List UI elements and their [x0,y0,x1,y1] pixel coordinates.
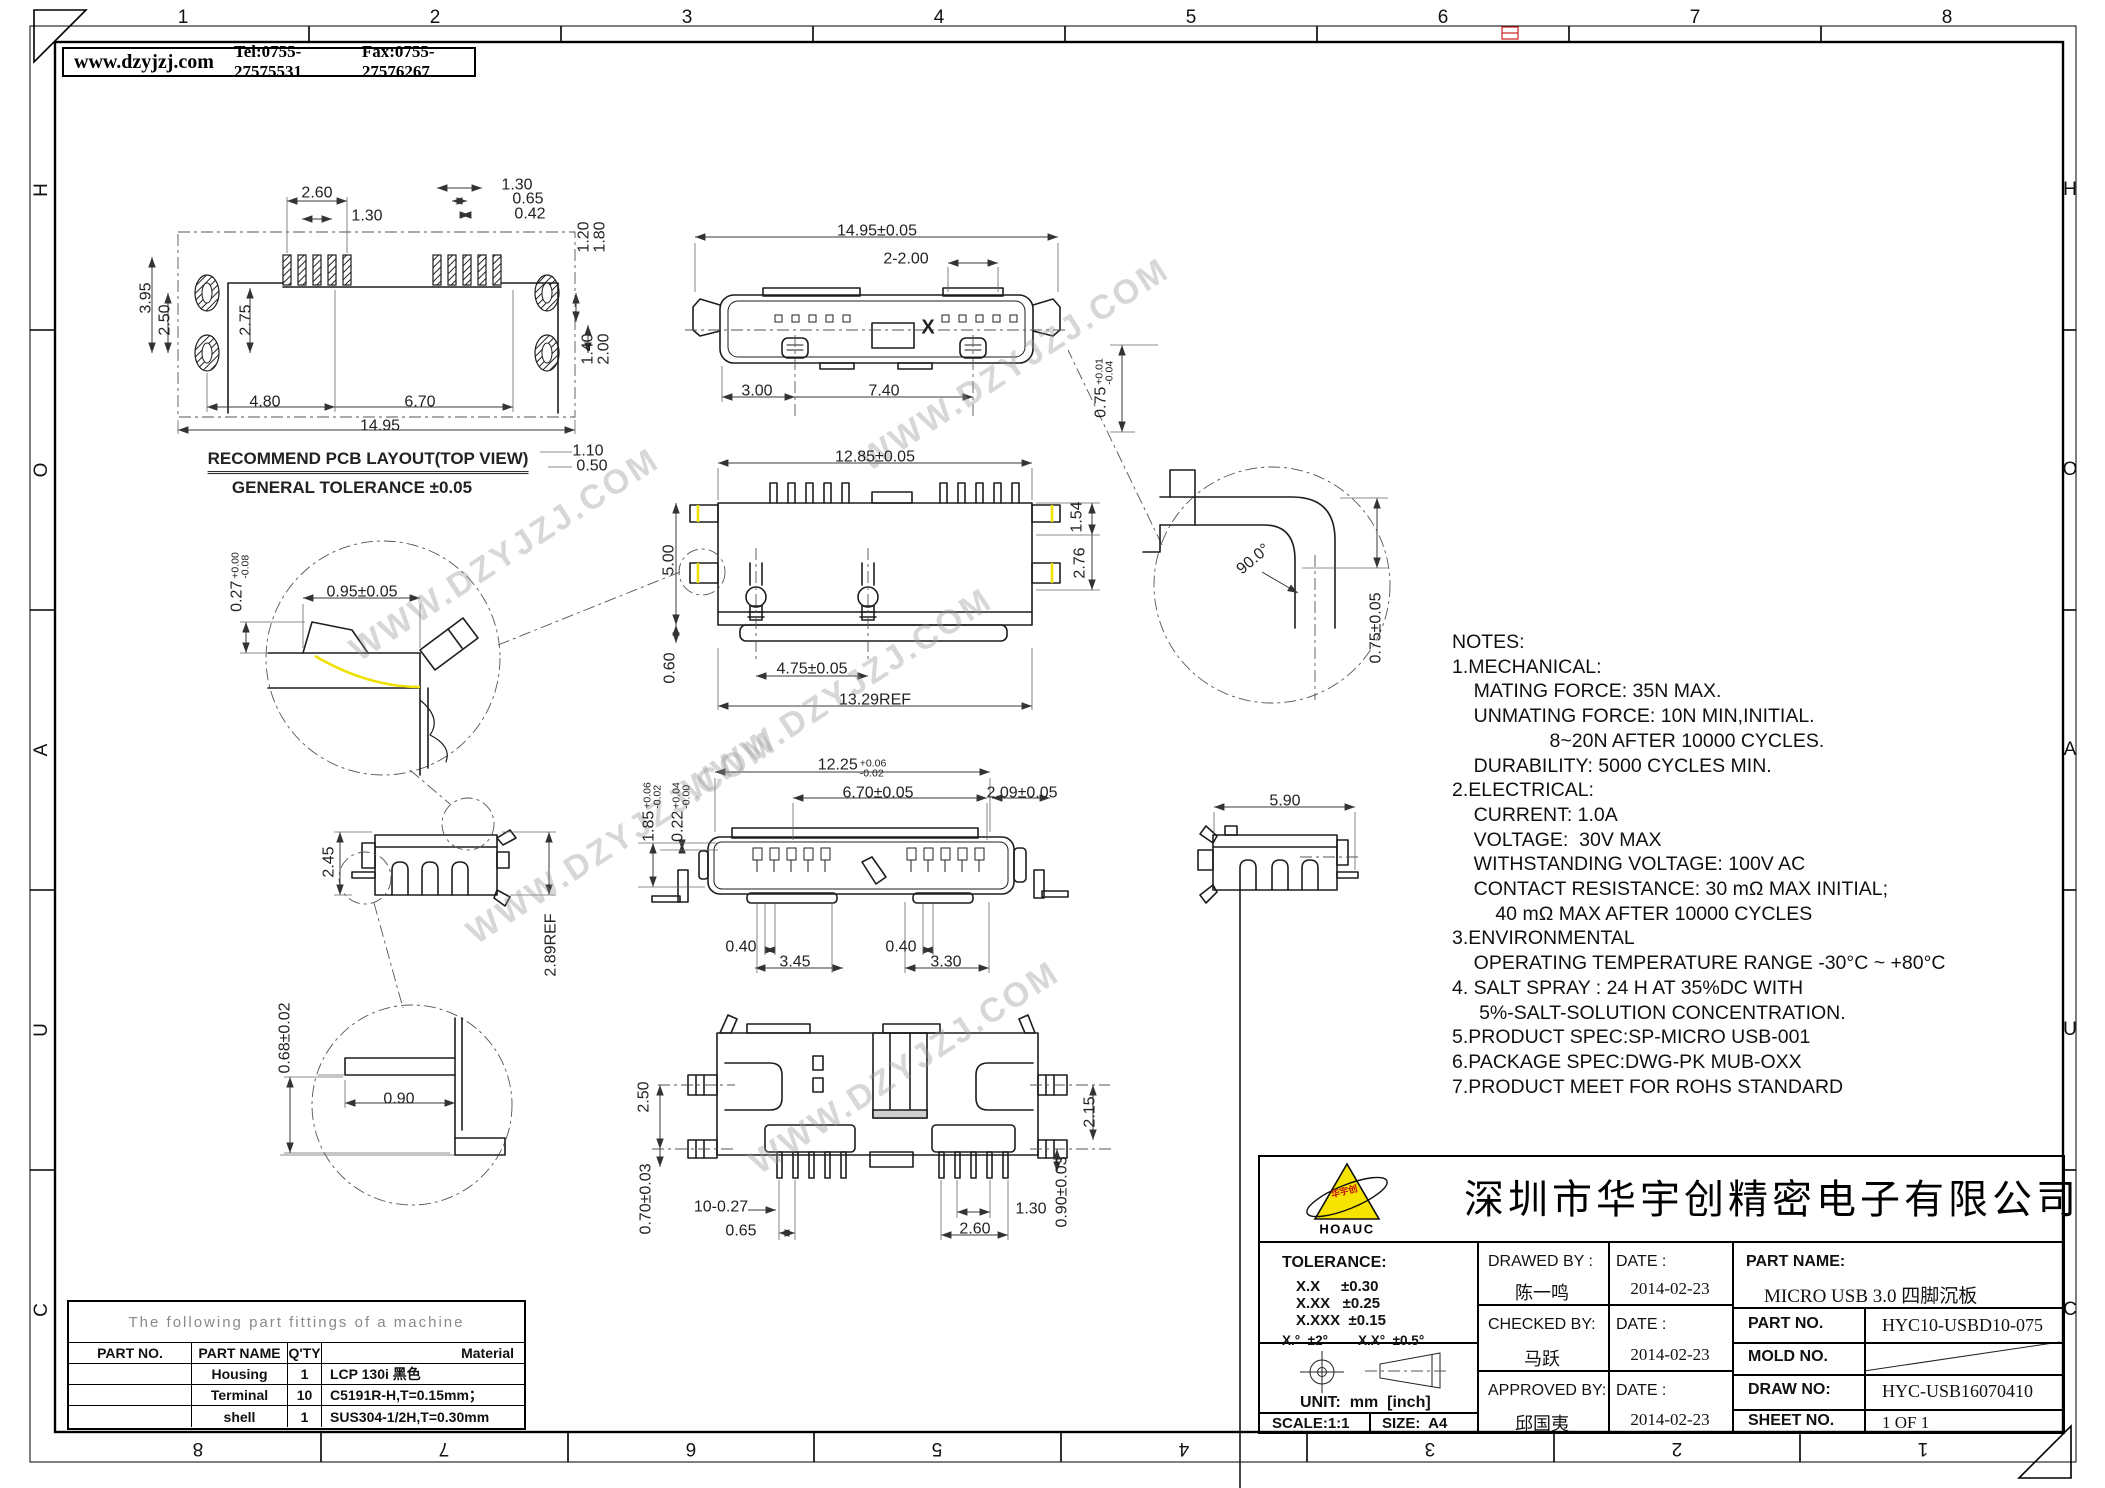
size-label: SIZE: A4 [1382,1415,1447,1432]
dim-mating-040a: 0.40 [725,940,756,957]
note-line: 2.ELECTRICAL: [1452,778,1945,803]
dim-pcb-1495: 14.95 [360,419,400,436]
note-line: 5%-SALT-SOLUTION CONCENTRATION. [1452,1001,1945,1026]
dim-detailc-090: 0.90 [383,1092,414,1109]
note-line: VOLTAGE: 30V MAX [1452,828,1945,853]
dim-detail-height: 0.75±0.05 [1369,592,1386,663]
tel-text: Tel:0755-27575531 [234,42,342,82]
dim-bottom-215: 2.15 [1083,1096,1100,1127]
red-stamp-icon [1502,27,1518,39]
dim-bottom-pins: 10-0.27 [694,1200,748,1217]
dim-top-pitch: 7.40 [868,384,899,401]
dim-mating-330: 3.30 [930,955,961,972]
dim-bottom-260: 2.60 [959,1222,990,1239]
zone-letter: C [31,1303,53,1317]
note-line: NOTES: [1452,630,1945,655]
fax-text: Fax:0755-27576267 [362,42,474,82]
checked-date: 2014-02-23 [1630,1345,1709,1365]
note-line: DURABILITY: 5000 CYCLES MIN. [1452,754,1945,779]
draw-no-value: HYC-USB16070410 [1882,1381,2033,1402]
drawn-by-name: 陈一鸣 [1515,1279,1569,1305]
approved-by-label: APPROVED BY: [1488,1382,1606,1400]
zone-number: 3 [1425,1437,1436,1459]
part-no-label: PART NO. [1748,1315,1823,1333]
scale-label: SCALE:1:1 [1272,1415,1350,1432]
dim-pcb-130a: 1.30 [351,209,382,226]
dim-front-ref: 13.29REF [839,693,911,710]
zone-number: 7 [1690,7,1701,29]
dim-pcb-050: 0.50 [576,459,607,476]
dim-bottom-130: 1.30 [1015,1202,1046,1219]
note-line: CONTACT RESISTANCE: 30 mΩ MAX INITIAL; [1452,877,1945,902]
tolerance-row: X.X ±0.30 [1296,1278,1378,1295]
parts-table-header: PART NO. PART NAME Q'TY Material [69,1343,524,1364]
drawing-sheet: WWW.DZYJZJ.COM WWW.DZYJZJ.COM WWW.DZYJZJ… [0,0,2105,1488]
zone-number: 1 [1918,1437,1929,1459]
dim-pcb-200: 2.00 [597,333,614,364]
logo-text: HOAUC [1319,1222,1374,1237]
dim-detailb-095: 0.95±0.05 [326,585,397,602]
note-line: 40 mΩ MAX AFTER 10000 CYCLES [1452,902,1945,927]
dim-pcb-260: 2.60 [301,186,332,203]
dim-pcb-670: 6.70 [404,395,435,412]
zone-letter: U [2063,1019,2077,1041]
dim-bottom-090: 0.90±0.03 [1055,1156,1072,1227]
dim-bottom-070: 0.70±0.03 [639,1163,656,1234]
dim-sideleft-245: 2.45 [322,846,339,877]
approved-date: 2014-02-23 [1630,1410,1709,1430]
cell-qty: 1 [288,1364,322,1384]
approved-date-label: DATE : [1616,1382,1666,1400]
draw-no-label: DRAW NO: [1748,1381,1831,1399]
zone-number: 2 [430,7,441,29]
drawn-by-label: DRAWED BY : [1488,1253,1593,1271]
dim-detailb-027: 0.27+0.00-0.08 [230,552,251,612]
col-header: PART NAME [192,1343,288,1363]
dim-mating-345: 3.45 [779,955,810,972]
dim-pcb-042: 0.42 [514,207,545,224]
zone-letter: O [31,463,53,478]
zone-number: 8 [193,1437,204,1459]
table-row: Housing 1 LCP 130i 黑色 [69,1364,524,1385]
note-line: 1.MECHANICAL: [1452,655,1945,680]
tolerance-label: TOLERANCE: [1282,1254,1387,1272]
note-line: WITHSTANDING VOLTAGE: 100V AC [1452,852,1945,877]
dim-top-left: 3.00 [741,384,772,401]
dim-bottom-065: 0.65 [725,1224,756,1241]
cell-part-name: Terminal [192,1385,288,1405]
dim-pcb-480: 4.80 [249,395,280,412]
dim-sideleft-ref: 2.89REF [544,913,561,976]
website-text: www.dzyjzj.com [74,51,214,74]
tolerance-angles: X.° ±2° X.X° ±0.5° [1282,1333,1424,1348]
table-row: shell 1 SUS304-1/2H,T=0.30mm [69,1406,524,1427]
cell-part-name: shell [192,1406,288,1427]
cell-part-name: Housing [192,1364,288,1384]
note-line: 8~20N AFTER 10000 CYCLES. [1452,729,1945,754]
header-bar: www.dzyjzj.com Tel:0755-27575531 Fax:075… [62,47,476,77]
zone-number: 4 [1179,1437,1190,1459]
dim-mating-inner: 6.70±0.05 [842,786,913,803]
x-marker-label: X [921,318,934,339]
zone-number: 7 [439,1437,450,1459]
dim-top-holes: 2-2.00 [883,252,928,269]
col-header: Material [322,1343,524,1363]
cell-part-no [69,1364,192,1384]
unit-label: UNIT: mm [inch] [1300,1394,1431,1412]
note-line: 5.PRODUCT SPEC:SP-MICRO USB-001 [1452,1025,1945,1050]
cell-qty: 10 [288,1385,322,1405]
col-header: PART NO. [69,1343,192,1363]
note-line: UNMATING FORCE: 10N MIN,INITIAL. [1452,704,1945,729]
drawn-date: 2014-02-23 [1630,1279,1709,1299]
tolerance-row: X.XXX ±0.15 [1296,1312,1386,1329]
drawn-date-label: DATE : [1616,1253,1666,1271]
dim-pcb-395: 3.95 [139,282,156,313]
checked-date-label: DATE : [1616,1316,1666,1334]
note-line: CURRENT: 1.0A [1452,803,1945,828]
zone-letter: A [2064,739,2077,761]
zone-letter: C [2063,1299,2077,1321]
dim-mating-185: 1.85+0.06-0.02 [642,782,663,842]
zone-letter: H [31,183,53,197]
cell-material: SUS304-1/2H,T=0.30mm [322,1406,524,1427]
zone-letter: O [2063,459,2078,481]
zone-number: 2 [1672,1437,1683,1459]
part-name-label: PART NAME: [1746,1253,1845,1271]
cell-qty: 1 [288,1406,322,1427]
dim-sideright-590: 5.90 [1269,794,1300,811]
dim-front-width: 12.85±0.05 [835,450,915,467]
dim-pcb-180: 1.80 [593,221,610,252]
mold-no-label: MOLD NO. [1748,1348,1828,1366]
cell-material: LCP 130i 黑色 [322,1364,524,1384]
note-line: 6.PACKAGE SPEC:DWG-PK MUB-OXX [1452,1050,1945,1075]
dim-mating-022: 0.22+0.04-0.00 [671,782,692,842]
zone-letter: A [31,744,53,757]
col-header: Q'TY [288,1343,322,1363]
dim-front-pins: 4.75±0.05 [776,662,847,679]
part-name-value: MICRO USB 3.0 四脚沉板 [1764,1281,1977,1308]
dim-front-154: 1.54 [1070,501,1087,532]
table-row: Terminal 10 C5191R-H,T=0.15mm； [69,1385,524,1406]
zone-letter: H [2063,179,2077,201]
dim-mating-right: 2.09±0.05 [986,786,1057,803]
zone-number: 6 [1438,7,1449,29]
dim-front-height: 5.00 [662,544,679,575]
zone-number: 5 [932,1437,943,1459]
zone-number: 3 [682,7,693,29]
sheet-no-label: SHEET NO. [1748,1412,1834,1430]
note-line: OPERATING TEMPERATURE RANGE -30°C ~ +80°… [1452,951,1945,976]
dim-pcb-250: 2.50 [158,304,175,335]
dim-detail-stem: 0.75+0.01-0.04 [1094,358,1115,418]
dim-detailc-068: 0.68±0.02 [278,1002,295,1073]
dim-bottom-250: 2.50 [637,1081,654,1112]
note-line: 4. SALT SPRAY : 24 H AT 35%DC WITH [1452,976,1945,1001]
zone-number: 4 [934,7,945,29]
detail-d-art [1068,345,1390,703]
part-no-value: HYC10-USBD10-075 [1882,1315,2043,1336]
zone-number: 8 [1942,7,1953,29]
note-line: 3.ENVIRONMENTAL [1452,926,1945,951]
zone-number: 5 [1186,7,1197,29]
dim-mating-width: 12.25+0.06-0.02 [818,758,887,779]
notes-block: NOTES: 1.MECHANICAL: MATING FORCE: 35N M… [1452,630,1945,1099]
dim-pcb-275: 2.75 [239,304,256,335]
cell-material: C5191R-H,T=0.15mm； [322,1385,524,1405]
dim-front-276: 2.76 [1073,547,1090,578]
pcb-tolerance-note: GENERAL TOLERANCE ±0.05 [232,479,472,497]
zone-number: 6 [686,1437,697,1459]
checked-by-name: 马跃 [1524,1345,1560,1371]
zone-number: 1 [178,7,189,29]
sheet-no-value: 1 OF 1 [1882,1413,1929,1433]
note-line: 7.PRODUCT MEET FOR ROHS STANDARD [1452,1075,1945,1100]
note-line: MATING FORCE: 35N MAX. [1452,679,1945,704]
parts-table-caption: The following part fittings of a machine [69,1302,524,1343]
cell-part-no [69,1385,192,1405]
zone-letter: U [31,1023,53,1037]
dim-top-width: 14.95±0.05 [837,224,917,241]
parts-table: The following part fittings of a machine… [67,1300,526,1430]
company-name: 深圳市华宇创精密电子有限公司 [1464,1167,2080,1225]
checked-by-label: CHECKED BY: [1488,1316,1596,1334]
cell-part-no [69,1406,192,1427]
dim-mating-040b: 0.40 [885,940,916,957]
tolerance-row: X.XX ±0.25 [1296,1295,1380,1312]
pcb-caption: RECOMMEND PCB LAYOUT(TOP VIEW) [208,450,529,474]
dim-front-060: 0.60 [663,652,680,683]
approved-by-name: 邱国夷 [1515,1410,1569,1436]
